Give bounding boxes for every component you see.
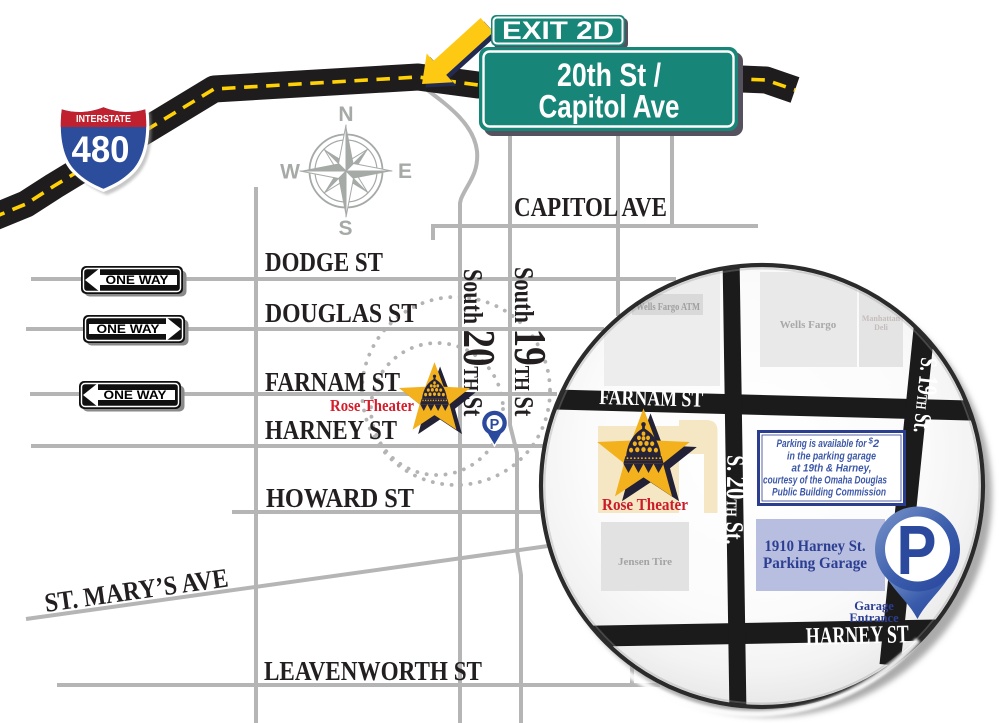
svg-text:E: E — [398, 160, 412, 183]
svg-text:N: N — [338, 103, 353, 126]
svg-text:CAPITOL AVE: CAPITOL AVE — [514, 192, 667, 222]
svg-text:S: S — [338, 217, 352, 240]
svg-text:Jensen Tire: Jensen Tire — [618, 556, 672, 568]
svg-text:Wells Fargo: Wells Fargo — [780, 319, 837, 331]
svg-text:DODGE ST: DODGE ST — [265, 247, 383, 277]
svg-text:EXIT 2D: EXIT 2D — [502, 17, 614, 45]
svg-text:INTERSTATE: INTERSTATE — [76, 114, 131, 125]
svg-text:at 19th & Harney,: at 19th & Harney, — [792, 463, 872, 475]
svg-text:ST. MARY’S AVE: ST. MARY’S AVE — [43, 562, 230, 617]
svg-text:Entrance: Entrance — [849, 611, 899, 625]
svg-text:Capitol Ave: Capitol Ave — [539, 89, 680, 125]
svg-text:ONE WAY: ONE WAY — [104, 390, 167, 402]
svg-text:ONE WAY: ONE WAY — [97, 324, 160, 336]
svg-text:HOWARD ST: HOWARD ST — [266, 483, 414, 513]
svg-text:Deli: Deli — [874, 323, 889, 332]
svg-text:LEAVENWORTH ST: LEAVENWORTH ST — [264, 656, 482, 686]
svg-text:Parking is available for: Parking is available for — [777, 438, 868, 450]
svg-text:HARNEY ST: HARNEY ST — [265, 415, 397, 445]
svg-text:in the parking garage: in the parking garage — [787, 451, 876, 463]
svg-text:Wells Fargo ATM: Wells Fargo ATM — [636, 302, 700, 313]
svg-text:ONE WAY: ONE WAY — [106, 275, 169, 287]
svg-text:FARNAM ST: FARNAM ST — [599, 384, 704, 412]
svg-text:courtesy of the Omaha Douglas: courtesy of the Omaha Douglas — [763, 475, 887, 487]
svg-text:DOUGLAS ST: DOUGLAS ST — [265, 298, 417, 328]
svg-text:FARNAM ST: FARNAM ST — [265, 367, 400, 397]
svg-text:Rose Theater: Rose Theater — [602, 495, 688, 514]
svg-text:W: W — [280, 161, 300, 184]
svg-text:Manhattan: Manhattan — [862, 314, 901, 323]
svg-text:P: P — [490, 417, 500, 433]
svg-text:P: P — [897, 511, 937, 589]
svg-text:2: 2 — [872, 438, 879, 450]
svg-text:Public Building Commission: Public Building Commission — [772, 487, 886, 499]
svg-text:Parking Garage: Parking Garage — [763, 555, 867, 572]
svg-text:Rose Theater: Rose Theater — [330, 396, 414, 415]
svg-text:1910 Harney St.: 1910 Harney St. — [765, 538, 866, 555]
svg-text:480: 480 — [72, 129, 130, 170]
